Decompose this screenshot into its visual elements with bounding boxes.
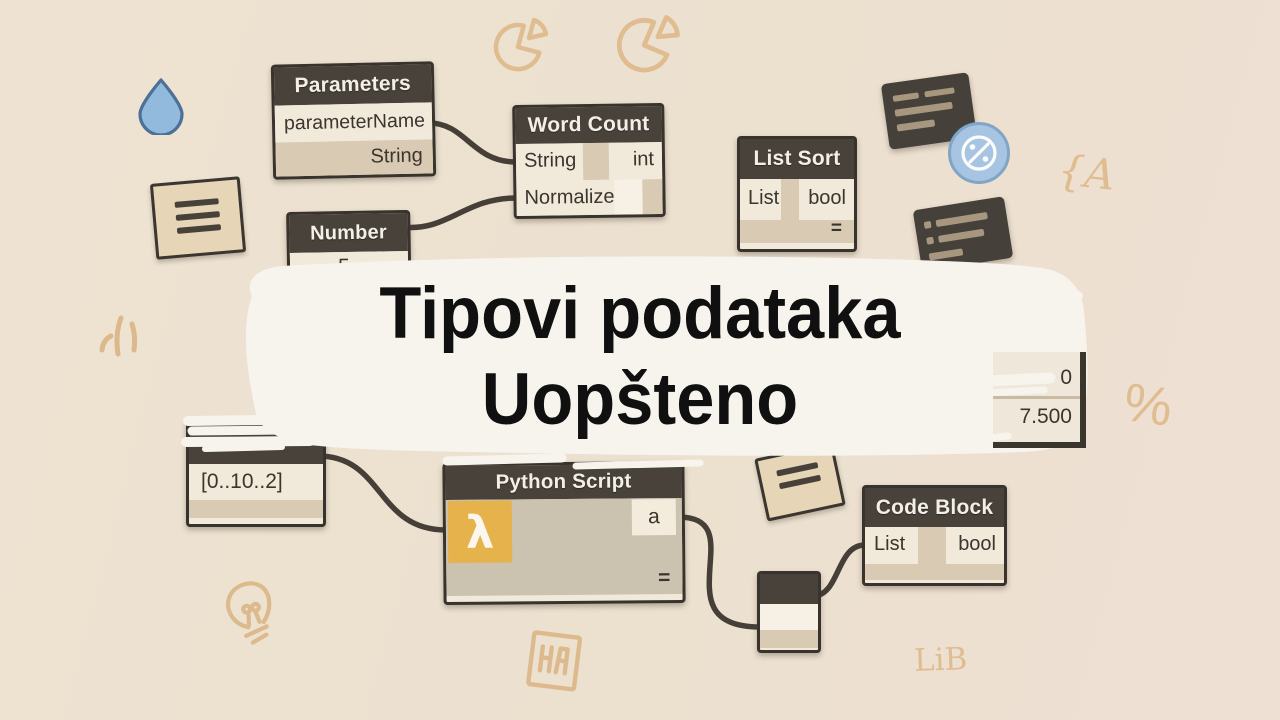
video-title: Tipovi podataka Uopšteno: [38, 271, 1241, 443]
title-line-1: Tipovi podataka: [38, 271, 1241, 357]
title-line-2: Uopšteno: [38, 357, 1241, 443]
thumbnail-canvas: {A % LiB: [0, 0, 1280, 720]
